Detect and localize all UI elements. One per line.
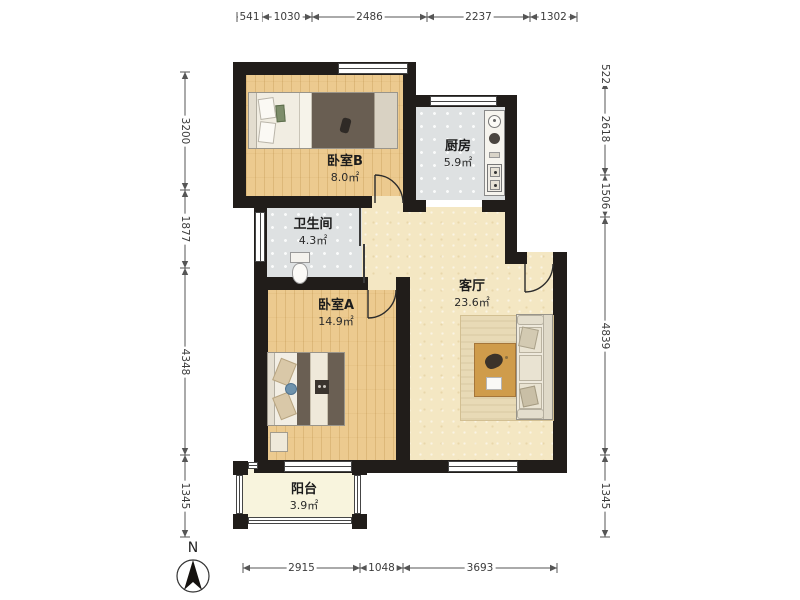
room-area: 3.9㎡: [290, 498, 319, 513]
dimension-arrow: [570, 14, 577, 20]
room-area: 4.3㎡: [293, 233, 332, 248]
round-cushion: [285, 383, 297, 395]
room-area: 5.9㎡: [444, 155, 473, 170]
dimension-label: 3693: [465, 562, 496, 574]
dimension-arrow: [182, 530, 188, 537]
dimension-label: 4839: [599, 321, 611, 352]
pillow: [272, 358, 297, 387]
room-name: 阳台: [290, 481, 319, 498]
table-card: [486, 377, 502, 390]
sofa-cushion: [519, 355, 542, 381]
bed-sheet: [299, 93, 312, 148]
toilet: [290, 252, 310, 285]
dimension-label: 4348: [179, 346, 191, 377]
room-name: 卧室B: [327, 153, 363, 170]
dimension-arrow: [602, 217, 608, 224]
dimension-arrow: [182, 268, 188, 275]
dimension-label: 1345: [179, 481, 191, 512]
table-decor-dot: [505, 356, 508, 359]
room-name: 卫生间: [293, 216, 332, 233]
dimension-arrow: [182, 261, 188, 268]
room-label-living: 客厅 23.6㎡: [454, 278, 490, 310]
room-label-bedroom-a: 卧室A 14.9㎡: [318, 297, 354, 329]
pillow: [275, 105, 285, 123]
pillow: [272, 392, 297, 421]
dimension-arrow: [427, 14, 434, 20]
corner-post: [352, 514, 367, 529]
room-name: 卧室A: [318, 297, 354, 314]
compass-label: N: [188, 540, 198, 556]
wall: [403, 62, 416, 208]
sofa-armrest: [517, 315, 544, 325]
dimension-label: 2915: [286, 562, 317, 574]
dimension-arrow: [602, 455, 608, 462]
dimension-arrow: [305, 14, 312, 20]
room-name: 客厅: [454, 278, 490, 295]
dimension-label: 1506: [599, 181, 611, 212]
room-label-bathroom: 卫生间 4.3㎡: [293, 216, 332, 248]
dimension-label: 1030: [272, 11, 303, 23]
wall: [505, 252, 527, 264]
pillow: [258, 97, 277, 120]
wall: [553, 252, 567, 473]
balcony-railing: [248, 462, 258, 469]
corner-post: [352, 461, 367, 475]
toilet-bowl: [292, 263, 308, 284]
dimension-arrow: [396, 565, 403, 571]
window: [255, 212, 265, 262]
dimension-arrow: [602, 448, 608, 455]
dimension-arrow: [262, 14, 269, 20]
room-area: 23.6㎡: [454, 295, 490, 310]
dimension-label: 2237: [463, 11, 494, 23]
north-arrow-icon: [177, 560, 209, 592]
dimension-arrow: [420, 14, 427, 20]
wall: [403, 200, 426, 212]
window: [284, 461, 352, 472]
dimension-arrow: [403, 565, 410, 571]
door-opening: [372, 196, 403, 208]
dimension-label: 1345: [599, 481, 611, 512]
entry-recess: [517, 207, 567, 252]
nightstand: [270, 432, 288, 452]
room-label-bedroom-b: 卧室B 8.0㎡: [327, 153, 363, 185]
balcony-railing: [236, 475, 243, 514]
corner-post: [233, 514, 248, 529]
double-bed: [248, 92, 398, 149]
sofa: [516, 314, 553, 420]
headboard: [268, 353, 275, 425]
dimension-arrow: [182, 72, 188, 79]
sofa-armrest: [517, 409, 544, 419]
dimension-label: 2618: [599, 113, 611, 144]
kitchen-counter: [484, 110, 505, 196]
blanket-trim: [374, 93, 397, 148]
dimension-label: 541: [237, 11, 261, 23]
burner-icon: [489, 133, 500, 144]
floor-plan: 卧室B 8.0㎡ 厨房 5.9㎡ 卫生间 4.3㎡ 卧室A 14.9㎡ 客厅 2…: [0, 0, 800, 600]
dimension-label: 1877: [179, 214, 191, 245]
table-decor: [483, 351, 505, 371]
deco-square: [315, 380, 329, 394]
door-opening: [368, 277, 396, 290]
toilet-tank: [290, 252, 310, 263]
deco-dot: [323, 385, 326, 388]
pillow: [258, 121, 276, 144]
window: [430, 96, 497, 106]
wall: [505, 95, 517, 264]
dimension-arrow: [530, 14, 537, 20]
headboard: [249, 93, 257, 148]
double-bed: [267, 352, 345, 426]
sofa-back: [543, 315, 552, 419]
room-area: 8.0㎡: [327, 170, 363, 185]
wall: [233, 62, 246, 208]
dimension-label: 1302: [538, 11, 569, 23]
dimension-arrow: [602, 168, 608, 175]
corner-post: [233, 461, 248, 475]
room-name: 厨房: [444, 138, 473, 155]
dimension-label: 1048: [366, 562, 397, 574]
stove-dot: [494, 184, 497, 187]
dimension-label: 522: [599, 61, 611, 85]
stove-dot: [494, 171, 497, 174]
dimension-arrow: [243, 565, 250, 571]
window: [338, 63, 408, 74]
room-label-kitchen: 厨房 5.9㎡: [444, 138, 473, 170]
cutting-board: [489, 152, 500, 158]
dimension-arrow: [182, 183, 188, 190]
dimension-arrow: [523, 14, 530, 20]
wall: [396, 277, 410, 473]
coffee-table: [474, 343, 516, 397]
dimension-arrow: [602, 530, 608, 537]
deco-dot: [318, 385, 321, 388]
dimension-arrow: [182, 190, 188, 197]
dimension-arrow: [182, 448, 188, 455]
balcony-railing: [354, 475, 361, 514]
wall: [482, 200, 517, 212]
dimension-arrow: [312, 14, 319, 20]
stove-icon: [487, 164, 502, 192]
dimension-arrow: [353, 565, 360, 571]
dimension-label: 2486: [354, 11, 385, 23]
window: [448, 461, 518, 472]
wall: [254, 277, 268, 473]
dimension-arrow: [182, 455, 188, 462]
balcony-railing: [248, 517, 352, 524]
wall: [254, 277, 368, 290]
dimension-label: 3200: [179, 116, 191, 147]
dimension-arrow: [550, 565, 557, 571]
faucet-icon: [493, 119, 496, 122]
room-label-balcony: 阳台 3.9㎡: [290, 481, 319, 513]
room-area: 14.9㎡: [318, 314, 354, 329]
